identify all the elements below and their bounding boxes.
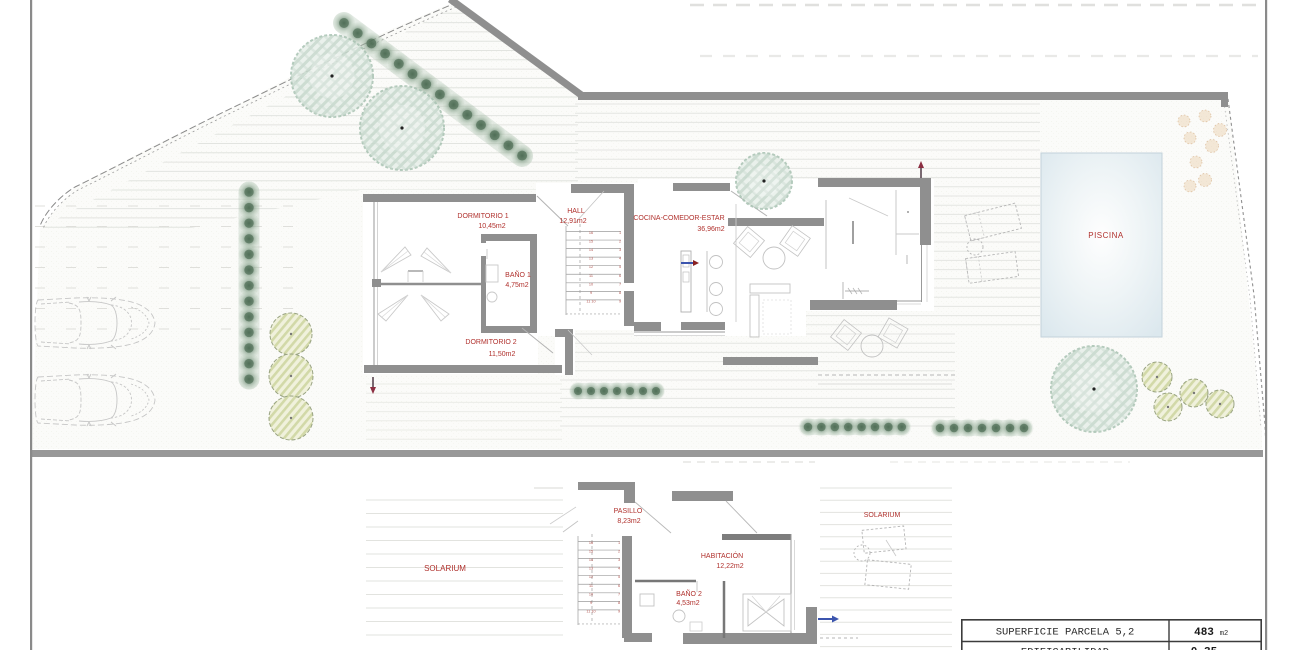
svg-text:15: 15 <box>589 240 593 244</box>
svg-text:12,91m2: 12,91m2 <box>559 218 586 225</box>
svg-text:PISCINA: PISCINA <box>1088 231 1124 240</box>
svg-text:3: 3 <box>618 558 620 562</box>
svg-text:16: 16 <box>589 231 593 235</box>
svg-text:3: 3 <box>619 248 621 252</box>
svg-text:8,23m2: 8,23m2 <box>617 518 640 525</box>
svg-text:11: 11 <box>589 274 593 278</box>
svg-text:SUPERFICIE PARCELA 5,2: SUPERFICIE PARCELA 5,2 <box>996 627 1135 639</box>
svg-text:m2: m2 <box>1220 630 1228 638</box>
svg-text:DORMITORIO 2: DORMITORIO 2 <box>465 339 516 346</box>
svg-text:SOLARIUM: SOLARIUM <box>864 512 901 519</box>
svg-text:6: 6 <box>619 274 621 278</box>
svg-text:2: 2 <box>618 550 620 554</box>
svg-text:8: 8 <box>618 601 620 605</box>
svg-text:HABITACIÓN: HABITACIÓN <box>701 551 743 560</box>
svg-text:4,75m2: 4,75m2 <box>505 282 528 289</box>
svg-text:7: 7 <box>619 282 621 286</box>
svg-text:5: 5 <box>619 265 621 269</box>
svg-text:1: 1 <box>619 231 621 235</box>
svg-text:12: 12 <box>589 265 593 269</box>
svg-text:15: 15 <box>589 550 593 554</box>
svg-text:14: 14 <box>589 248 593 252</box>
svg-text:11,50m2: 11,50m2 <box>489 351 516 358</box>
svg-text:COCINA-COMEDOR-ESTAR: COCINA-COMEDOR-ESTAR <box>633 215 724 222</box>
svg-text:6: 6 <box>618 584 620 588</box>
svg-text:14: 14 <box>589 558 593 562</box>
svg-text:36,96m2: 36,96m2 <box>697 226 724 233</box>
svg-text:EDIFICABILIDAD: EDIFICABILIDAD <box>1021 647 1109 651</box>
svg-text:BAÑO 1: BAÑO 1 <box>505 270 531 279</box>
svg-text:8: 8 <box>619 291 621 295</box>
svg-text:9: 9 <box>619 299 621 303</box>
svg-text:12,22m2: 12,22m2 <box>716 563 743 570</box>
svg-text:BAÑO 2: BAÑO 2 <box>676 589 702 598</box>
svg-text:4: 4 <box>618 567 620 571</box>
svg-text:HALL: HALL <box>567 208 585 215</box>
svg-text:1: 1 <box>618 541 620 545</box>
svg-text:PASILLO: PASILLO <box>614 508 643 515</box>
svg-text:10: 10 <box>589 592 593 596</box>
svg-text:4: 4 <box>619 257 621 261</box>
svg-text:SOLARIUM: SOLARIUM <box>424 564 466 573</box>
svg-text:16: 16 <box>589 541 593 545</box>
svg-text:11 10: 11 10 <box>586 299 595 303</box>
svg-text:11 10: 11 10 <box>586 609 595 613</box>
svg-text:12: 12 <box>589 575 593 579</box>
svg-text:7: 7 <box>618 592 620 596</box>
svg-text:10: 10 <box>589 282 593 286</box>
svg-text:2: 2 <box>619 240 621 244</box>
svg-text:9: 9 <box>590 291 592 295</box>
svg-text:0,35: 0,35 <box>1191 647 1218 651</box>
svg-text:DORMITORIO 1: DORMITORIO 1 <box>457 213 508 220</box>
svg-text:483: 483 <box>1194 627 1214 639</box>
svg-text:9: 9 <box>590 601 592 605</box>
svg-text:11: 11 <box>589 584 593 588</box>
svg-text:13: 13 <box>589 567 593 571</box>
svg-text:9: 9 <box>618 609 620 613</box>
svg-text:10,45m2: 10,45m2 <box>478 223 505 230</box>
svg-text:5: 5 <box>618 575 620 579</box>
svg-text:13: 13 <box>589 257 593 261</box>
svg-text:4,53m2: 4,53m2 <box>676 600 699 607</box>
